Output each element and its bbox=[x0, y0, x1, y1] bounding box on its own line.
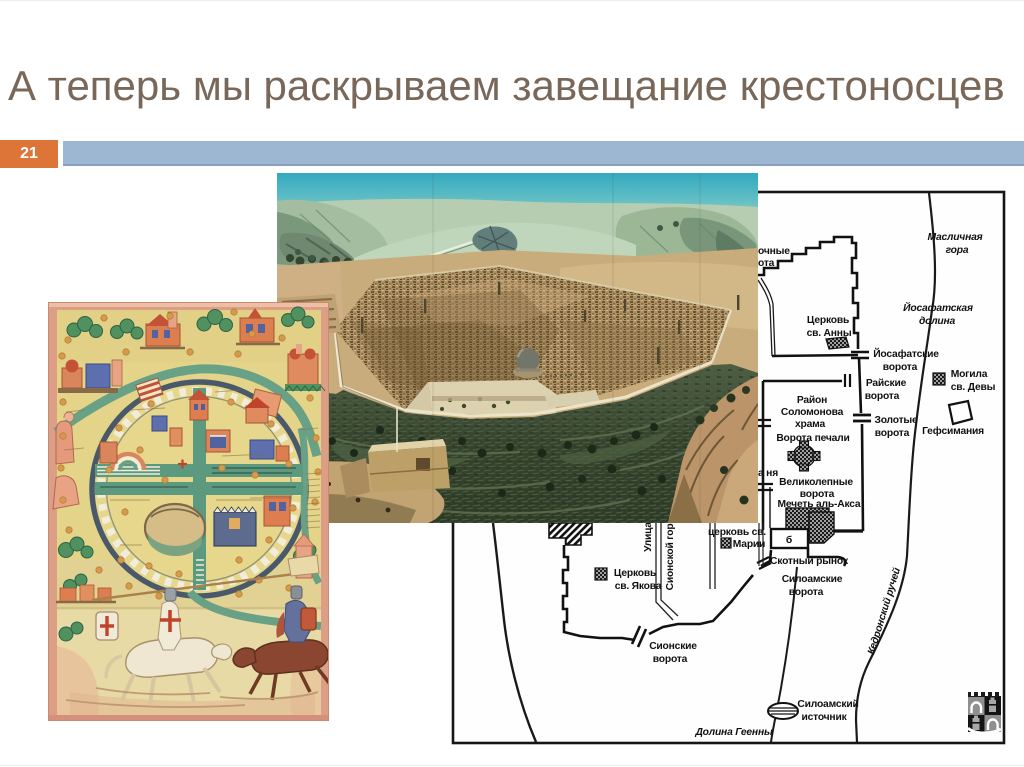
svg-text:св. Анны: св. Анны bbox=[807, 328, 852, 339]
svg-text:Силоамский: Силоамский bbox=[797, 699, 858, 710]
svg-text:св. Якова: св. Якова bbox=[615, 581, 662, 592]
svg-text:церковь св.: церковь св. bbox=[708, 527, 766, 538]
svg-text:ворота: ворота bbox=[865, 391, 900, 402]
svg-text:а ня: а ня bbox=[758, 468, 778, 479]
svg-text:ота: ота bbox=[758, 258, 775, 269]
svg-text:Гефсимания: Гефсимания bbox=[922, 425, 984, 437]
svg-text:Долина Геенны: Долина Геенны bbox=[694, 727, 773, 738]
svg-text:Скотный рынок: Скотный рынок bbox=[770, 556, 849, 567]
svg-text:Улица: Улица bbox=[643, 522, 654, 552]
svg-text:Церковь: Церковь bbox=[807, 315, 849, 326]
svg-text:Райские: Райские bbox=[866, 378, 907, 389]
svg-text:Великолепные: Великолепные bbox=[779, 477, 853, 488]
svg-text:очные: очные bbox=[758, 246, 790, 257]
svg-text:Силоамские: Силоамские bbox=[782, 574, 843, 585]
svg-text:Могила: Могила bbox=[951, 369, 988, 380]
svg-text:б: б bbox=[786, 534, 792, 546]
svg-text:Масличная: Масличная bbox=[927, 232, 982, 243]
svg-text:Соломонова: Соломонова bbox=[781, 407, 844, 418]
svg-text:Золотые: Золотые bbox=[874, 415, 918, 426]
svg-text:ворота: ворота bbox=[875, 428, 910, 439]
svg-text:Мечеть аль-Акса: Мечеть аль-Акса bbox=[778, 499, 861, 510]
svg-text:Церковь: Церковь bbox=[614, 568, 656, 579]
svg-text:ворота: ворота bbox=[653, 654, 688, 665]
svg-text:Марии: Марии bbox=[733, 539, 765, 550]
svg-text:Йосафатская: Йосафатская bbox=[903, 301, 973, 314]
svg-text:Ворота печали: Ворота печали bbox=[776, 433, 849, 444]
svg-text:ворота: ворота bbox=[883, 362, 918, 373]
svg-text:ворота: ворота bbox=[789, 587, 824, 598]
svg-text:Сионской гор: Сионской гор bbox=[665, 524, 676, 591]
svg-text:долина: долина bbox=[919, 316, 956, 327]
svg-text:гора: гора bbox=[946, 245, 969, 256]
svg-text:источник: источник bbox=[801, 712, 847, 723]
svg-text:Йосафатские: Йосафатские bbox=[873, 347, 939, 360]
svg-text:св. Девы: св. Девы bbox=[951, 382, 996, 393]
svg-text:храма: храма bbox=[795, 419, 825, 430]
svg-text:Сионские: Сионские bbox=[649, 641, 697, 652]
svg-text:Район: Район bbox=[797, 395, 827, 406]
